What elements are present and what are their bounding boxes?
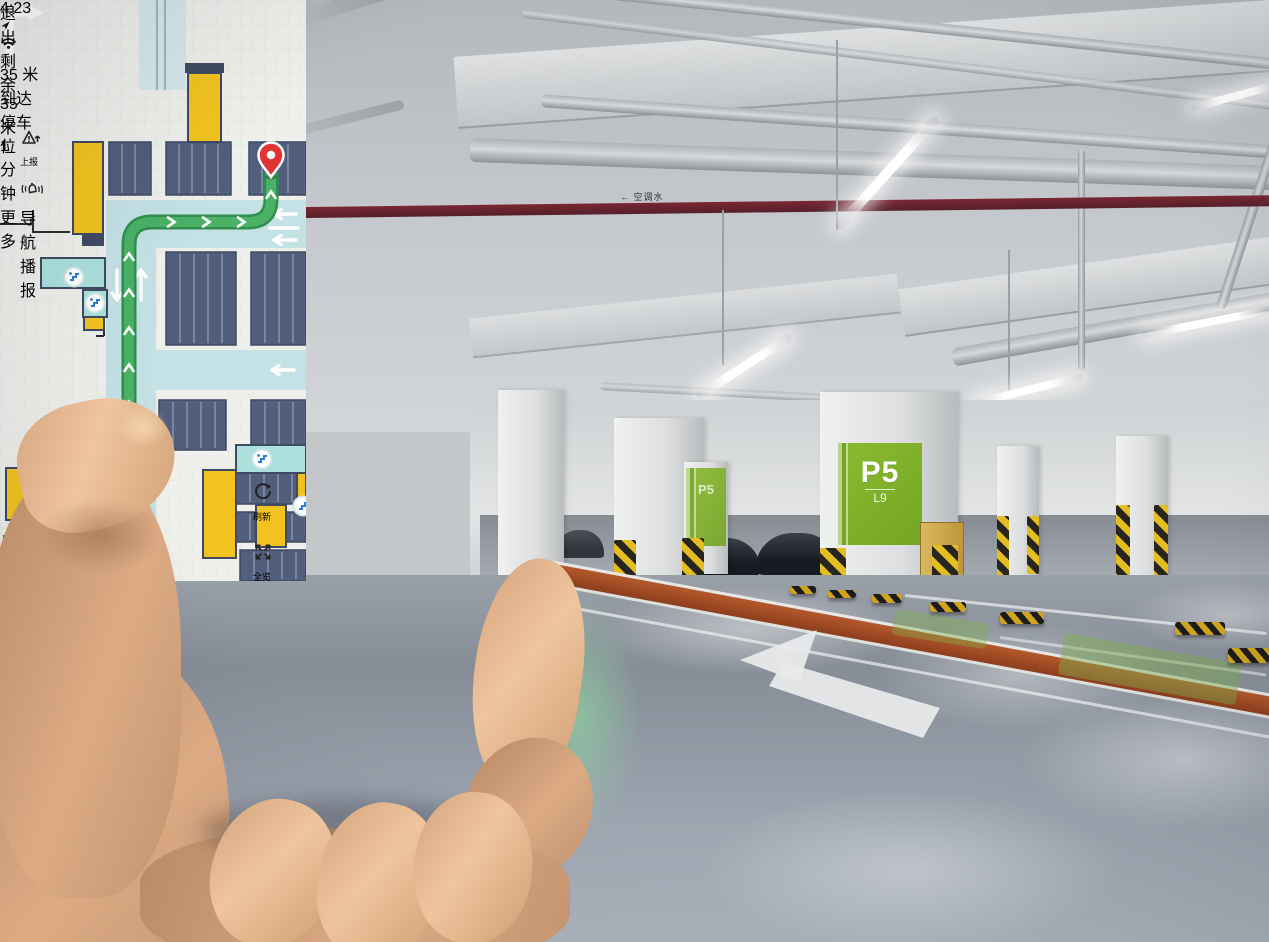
report-warning-icon	[20, 127, 42, 147]
ceiling-conduit	[1078, 150, 1085, 370]
light-hanger-rod	[722, 210, 724, 365]
banner-distance-unit: 米	[22, 67, 38, 84]
wheel-stop	[1228, 648, 1269, 663]
report-button[interactable]: 上报	[20, 127, 42, 170]
hazard-stripe-base	[1027, 516, 1039, 574]
wheel-stop	[872, 594, 902, 603]
voice-broadcast-button[interactable]: 导航播报	[20, 182, 44, 301]
thumb-highlight	[118, 406, 168, 448]
distant-parking-zone-sign: P5	[686, 468, 726, 546]
remaining-summary: 剩余35米 1分钟	[0, 48, 18, 204]
wheel-stop	[828, 590, 856, 598]
overview-button-label: 全览	[253, 572, 271, 582]
light-hanger-rod	[1008, 250, 1010, 390]
wheel-stop	[1000, 612, 1044, 624]
scene-parking-garage-photo: ← 空调水 P5 P5 L9	[0, 0, 1269, 942]
hazard-stripe-base	[1154, 505, 1168, 580]
light-hanger-rod	[836, 40, 838, 230]
thumb-web-shadow	[38, 498, 163, 573]
refresh-button-label: 刷新	[253, 512, 271, 522]
voice-broadcast-label: 导航播报	[20, 211, 36, 300]
pipe-label-text: 空调水	[634, 192, 664, 202]
floor-direction-arrow	[735, 628, 945, 740]
more-button[interactable]: 更多	[0, 204, 18, 252]
overview-expand-icon	[253, 542, 273, 562]
overview-button[interactable]: 全览	[253, 542, 273, 585]
level-label: L9	[865, 489, 894, 505]
distant-zone-label: P5	[686, 482, 726, 497]
pipe-label: ← 空调水	[620, 190, 664, 203]
wheel-stop	[930, 602, 966, 612]
wheel-stop	[1175, 622, 1225, 635]
wheel-stop	[790, 586, 816, 594]
refresh-icon	[253, 482, 273, 502]
pipe-label-arrow: ←	[620, 192, 630, 202]
navigation-bottom-bar: 退出 剩余35米 1分钟 更多	[0, 0, 18, 252]
parking-zone-sign: P5 L9	[838, 443, 922, 545]
report-button-label: 上报	[20, 157, 38, 167]
hazard-stripe-base	[997, 516, 1009, 578]
refresh-button[interactable]: 刷新	[253, 482, 273, 525]
floor-reflection	[700, 790, 1120, 942]
zone-label: P5	[838, 457, 922, 489]
voice-broadcast-icon	[20, 182, 44, 200]
exit-button[interactable]: 退出	[0, 0, 18, 48]
hazard-stripe-base	[1116, 505, 1130, 583]
